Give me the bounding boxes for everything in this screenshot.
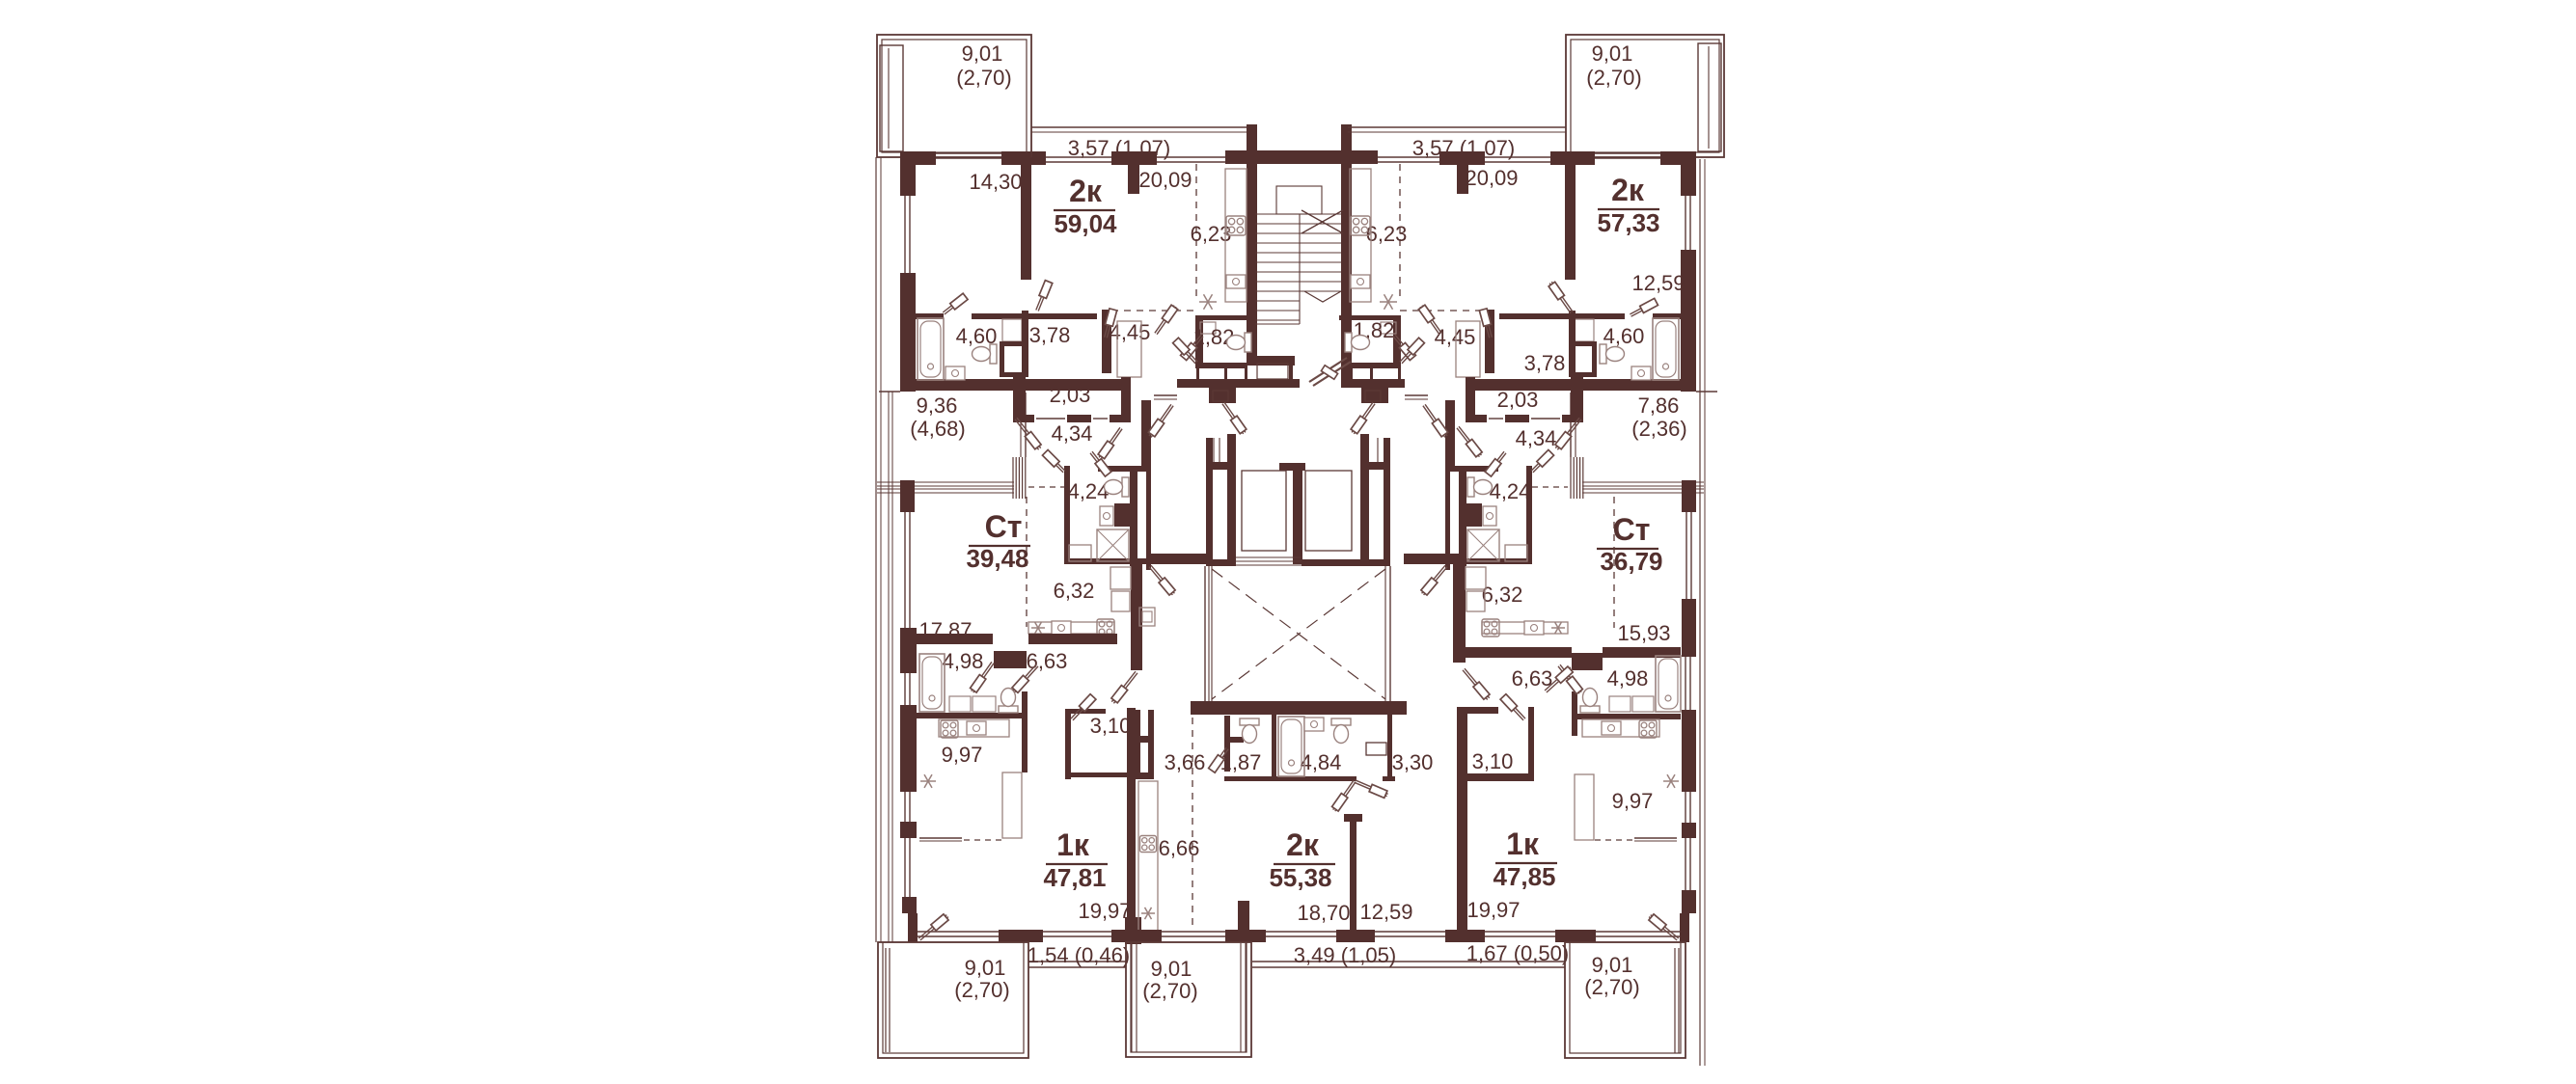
svg-text:1,87: 1,87 xyxy=(1220,750,1262,774)
svg-text:(2,70): (2,70) xyxy=(954,978,1009,1002)
svg-text:6,32: 6,32 xyxy=(1482,583,1523,607)
svg-text:9,01: 9,01 xyxy=(962,41,1003,66)
svg-text:2к: 2к xyxy=(1611,173,1645,207)
svg-text:47,81: 47,81 xyxy=(1043,863,1106,892)
svg-text:Ст: Ст xyxy=(985,509,1023,544)
svg-text:9,97: 9,97 xyxy=(942,743,983,767)
svg-text:(2,36): (2,36) xyxy=(1631,417,1686,441)
svg-text:(4,68): (4,68) xyxy=(910,417,965,441)
svg-text:7,86: 7,86 xyxy=(1638,393,1680,418)
svg-text:(2,70): (2,70) xyxy=(956,66,1011,90)
svg-text:19,97: 19,97 xyxy=(1466,898,1520,922)
svg-text:6,63: 6,63 xyxy=(1512,666,1553,691)
svg-text:2к: 2к xyxy=(1286,827,1320,862)
svg-text:4,98: 4,98 xyxy=(1607,666,1649,691)
svg-text:6,23: 6,23 xyxy=(1366,222,1408,246)
svg-text:39,48: 39,48 xyxy=(966,544,1028,573)
svg-text:59,04: 59,04 xyxy=(1054,209,1117,238)
svg-text:1,54 (0,46): 1,54 (0,46) xyxy=(1028,943,1130,967)
svg-text:1к: 1к xyxy=(1056,827,1090,862)
svg-text:6,66: 6,66 xyxy=(1159,836,1200,860)
svg-text:(2,70): (2,70) xyxy=(1584,975,1639,999)
svg-text:4,45: 4,45 xyxy=(1435,325,1476,349)
svg-text:4,98: 4,98 xyxy=(943,649,984,673)
svg-text:3,78: 3,78 xyxy=(1029,323,1071,347)
svg-text:20,09: 20,09 xyxy=(1138,168,1192,192)
svg-text:4,34: 4,34 xyxy=(1052,421,1093,446)
svg-text:3,30: 3,30 xyxy=(1392,750,1434,774)
svg-text:1,67 (0,50): 1,67 (0,50) xyxy=(1466,941,1569,965)
svg-text:3,78: 3,78 xyxy=(1524,351,1566,375)
svg-text:55,38: 55,38 xyxy=(1269,863,1331,892)
svg-text:20,09: 20,09 xyxy=(1465,166,1518,190)
svg-text:9,01: 9,01 xyxy=(965,956,1006,980)
svg-text:14,30: 14,30 xyxy=(969,170,1022,194)
svg-text:9,01: 9,01 xyxy=(1592,41,1633,66)
svg-text:2,03: 2,03 xyxy=(1497,388,1539,412)
svg-text:3,10: 3,10 xyxy=(1472,749,1514,773)
svg-text:9,01: 9,01 xyxy=(1151,957,1192,981)
svg-text:3,66: 3,66 xyxy=(1165,750,1206,774)
svg-text:4,34: 4,34 xyxy=(1516,426,1557,450)
svg-text:2к: 2к xyxy=(1069,174,1103,208)
svg-text:9,97: 9,97 xyxy=(1612,789,1654,813)
svg-text:36,79: 36,79 xyxy=(1600,547,1662,576)
svg-text:19,97: 19,97 xyxy=(1078,899,1131,923)
svg-text:(2,70): (2,70) xyxy=(1142,979,1197,1003)
svg-text:18,70: 18,70 xyxy=(1297,901,1350,925)
svg-text:3,49 (1,05): 3,49 (1,05) xyxy=(1294,943,1396,967)
svg-text:12,59: 12,59 xyxy=(1631,271,1685,295)
svg-text:15,93: 15,93 xyxy=(1617,621,1670,645)
svg-text:57,33: 57,33 xyxy=(1597,208,1659,237)
svg-text:4,84: 4,84 xyxy=(1301,750,1342,774)
svg-text:6,32: 6,32 xyxy=(1054,579,1095,603)
svg-text:4,24: 4,24 xyxy=(1490,479,1531,503)
svg-text:2,03: 2,03 xyxy=(1050,383,1091,407)
svg-text:(2,70): (2,70) xyxy=(1586,66,1641,90)
svg-text:47,85: 47,85 xyxy=(1493,862,1555,891)
svg-text:4,60: 4,60 xyxy=(1603,324,1645,348)
svg-text:9,36: 9,36 xyxy=(917,393,958,418)
svg-text:4,45: 4,45 xyxy=(1110,320,1151,344)
svg-text:12,59: 12,59 xyxy=(1359,900,1412,924)
svg-text:Ст: Ст xyxy=(1613,512,1651,547)
svg-text:1к: 1к xyxy=(1506,827,1540,861)
svg-text:3,10: 3,10 xyxy=(1090,714,1132,738)
svg-text:9,01: 9,01 xyxy=(1592,953,1633,977)
svg-text:4,24: 4,24 xyxy=(1068,479,1110,503)
